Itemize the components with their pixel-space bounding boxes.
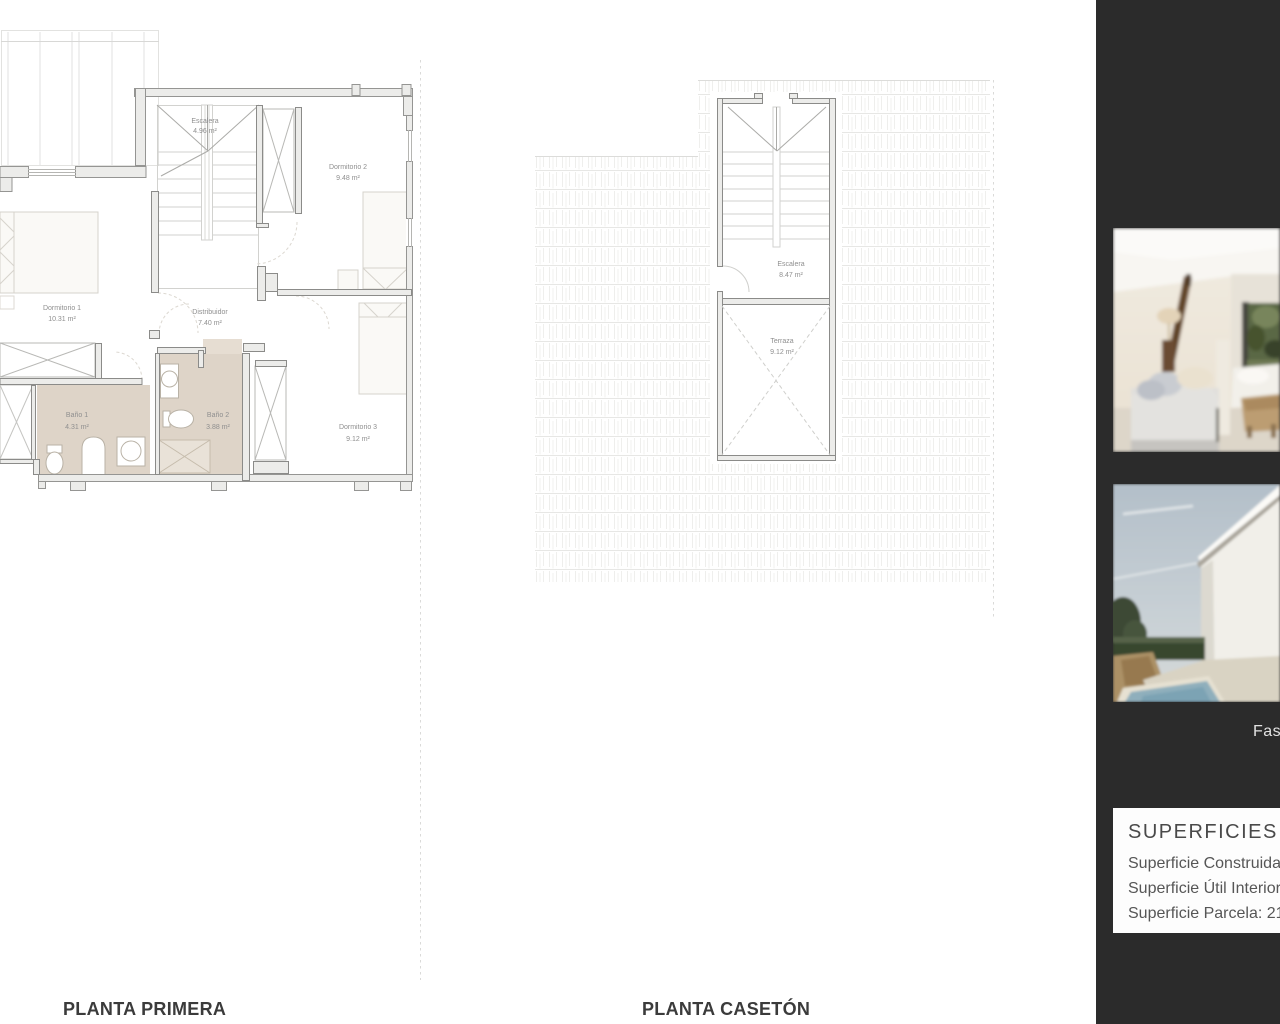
svg-text:Escalera: Escalera: [191, 118, 218, 125]
svg-text:9.48 m²: 9.48 m²: [336, 175, 360, 182]
svg-text:4.96 m²: 4.96 m²: [193, 128, 217, 135]
svg-text:8.47 m²: 8.47 m²: [779, 272, 803, 279]
svg-text:Dormitorio 3: Dormitorio 3: [339, 424, 377, 431]
svg-text:Baño 2: Baño 2: [207, 412, 229, 419]
svg-text:Distribuidor: Distribuidor: [192, 309, 228, 316]
svg-text:4.31 m²: 4.31 m²: [65, 424, 89, 431]
svg-text:9.12 m²: 9.12 m²: [346, 436, 370, 443]
svg-text:9.12 m²: 9.12 m²: [770, 349, 794, 356]
svg-text:10.31 m²: 10.31 m²: [48, 316, 76, 323]
svg-text:Baño 1: Baño 1: [66, 412, 88, 419]
svg-text:Dormitorio 2: Dormitorio 2: [329, 164, 367, 171]
svg-text:7.40 m²: 7.40 m²: [198, 320, 222, 327]
svg-text:Terraza: Terraza: [770, 338, 793, 345]
svg-text:Escalera: Escalera: [777, 261, 804, 268]
svg-text:3.88 m²: 3.88 m²: [206, 424, 230, 431]
svg-text:Dormitorio 1: Dormitorio 1: [43, 305, 81, 312]
